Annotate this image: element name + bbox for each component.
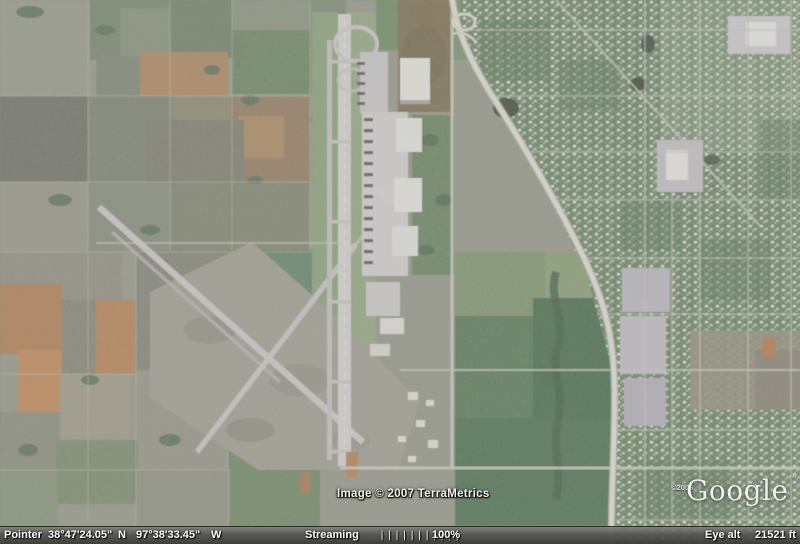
satellite-imagery[interactable] [0,0,800,544]
eye-altitude-value: 21521 ft [755,529,796,541]
google-logo: Google™ [686,474,798,507]
pointer-latitude: 38°47'24.05" [48,529,112,541]
latitude-hemisphere: N [118,529,126,541]
noise-overlay [0,0,800,544]
status-bar: Pointer 38°47'24.05" N 97°38'33.45" W St… [0,526,800,544]
eye-altitude-label: Eye alt [705,529,740,541]
google-earth-map-viewport[interactable]: Image © 2007 TerraMetrics ©2006 Google™ … [0,0,800,544]
pointer-longitude: 97°38'33.45" [136,529,200,541]
trademark-symbol: ™ [789,475,798,485]
pointer-label: Pointer [4,529,42,541]
image-credit-watermark: Image © 2007 TerraMetrics [337,488,490,500]
google-logo-text: Google [686,474,789,507]
longitude-hemisphere: W [211,529,221,541]
streaming-percent: 100% [432,529,460,541]
streaming-label: Streaming [305,529,359,541]
